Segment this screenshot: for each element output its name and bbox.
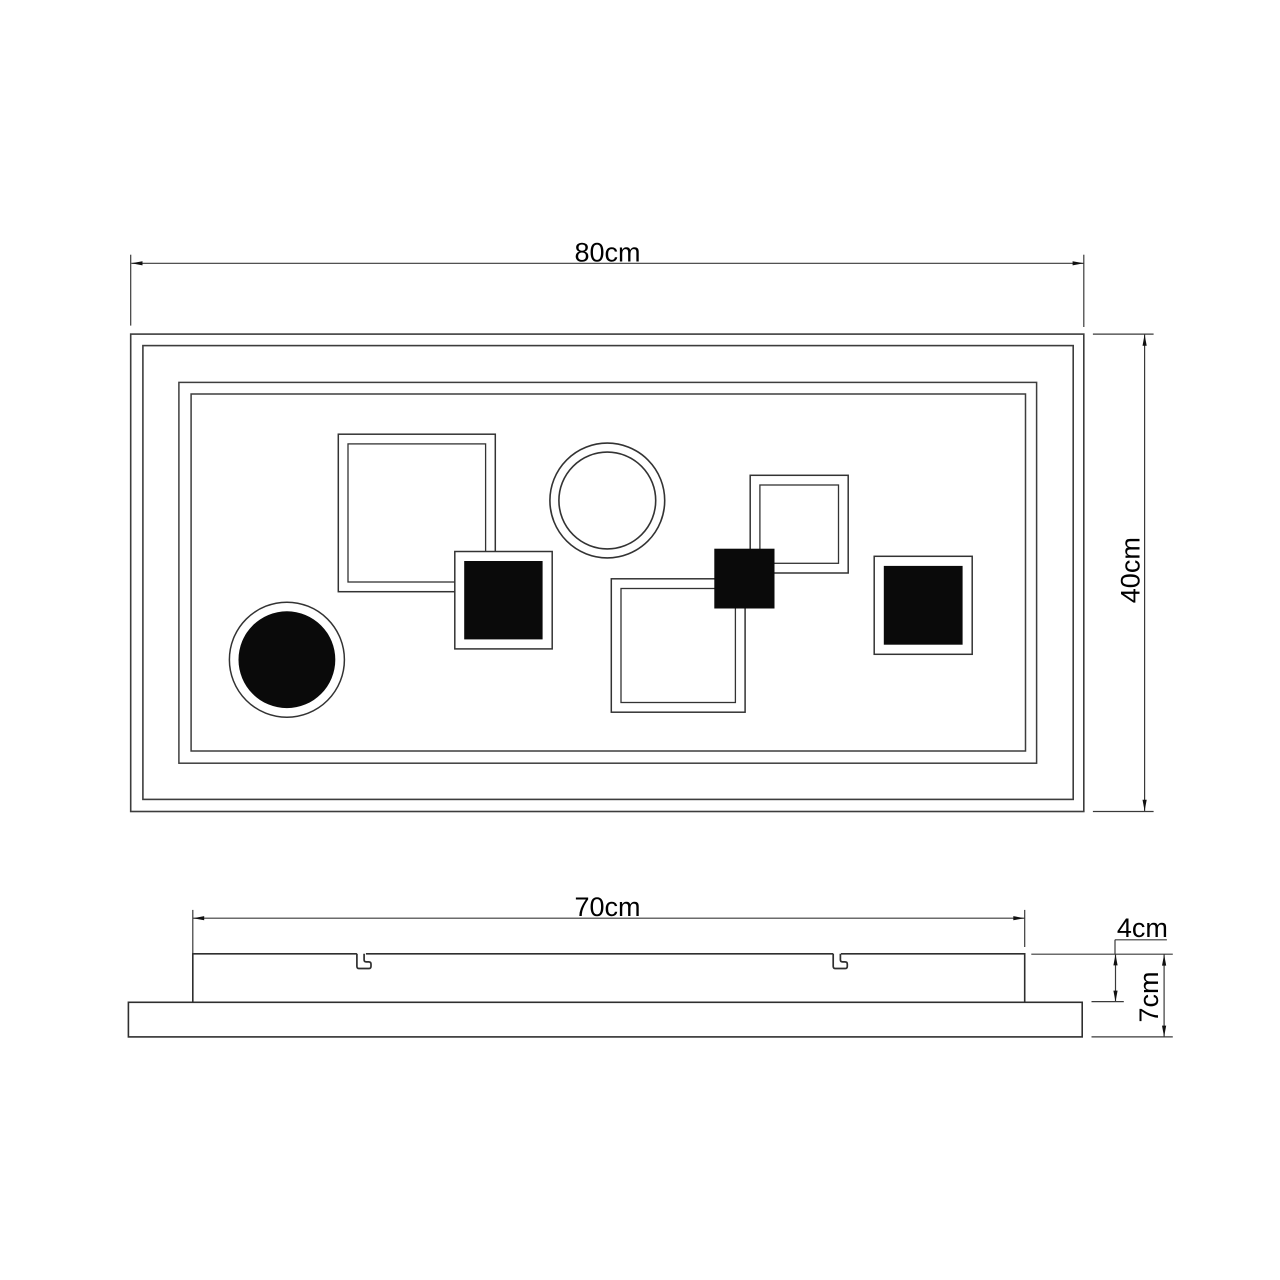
- svg-text:80cm: 80cm: [574, 238, 640, 268]
- svg-text:70cm: 70cm: [574, 892, 640, 922]
- svg-text:4cm: 4cm: [1117, 913, 1168, 943]
- svg-text:7cm: 7cm: [1134, 971, 1164, 1022]
- svg-text:40cm: 40cm: [1116, 537, 1146, 603]
